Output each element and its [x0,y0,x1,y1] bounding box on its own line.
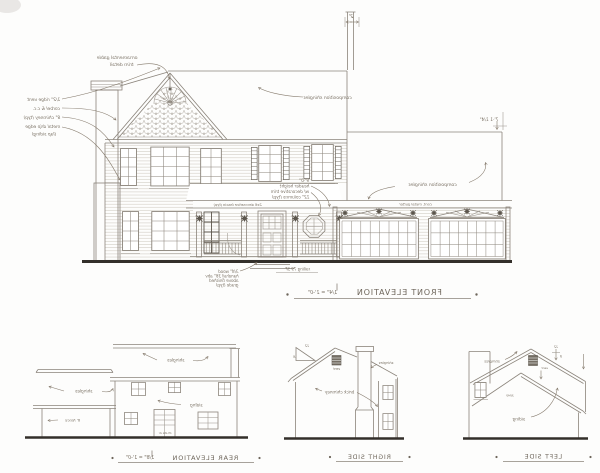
rear-main-house: shingles siding 15-lite dr [110,345,240,438]
window [218,383,230,396]
window [201,149,222,186]
window [132,383,146,396]
gable-vent: vent [332,356,341,372]
right-title-block: RIGHT SIDE [329,454,411,462]
elevation-drawing: 2' [0,0,600,473]
callout: 8" chimney (typ) [23,115,60,121]
drawing-title: REAR ELEVATION [172,454,239,462]
rear-window-pair [198,412,218,429]
annotation: vent [541,366,549,370]
callout: (lap siding) [31,132,56,138]
eave-dimension: 7'-1 1/4" [480,112,507,130]
drawing-title: RIGHT SIDE [347,454,391,461]
callout: 1/2" ridge vent [27,97,60,103]
rear-tower [469,352,490,439]
window [168,382,180,392]
annotation: ornamental gable [97,55,138,61]
annotation: w/ decorative trim [271,189,309,194]
window [475,383,486,398]
hanging-plant-ornament [196,215,203,222]
window [383,386,393,400]
annotation: siding [512,417,525,422]
side-chimney [356,347,374,439]
pitch-rise: 8 [560,355,562,359]
octagon-window [303,216,325,238]
annotation: grade (typ) [215,283,238,288]
shutter [283,147,289,179]
flue-dim: 2' [349,14,353,20]
gutter-note: cont. metal gutter [399,203,432,207]
rear-title-block: REAR ELEVATION 1/8" = 1'-0" [111,451,260,463]
shutter [304,146,310,178]
callout: metal drip edge [25,124,60,130]
annotation: shingles [74,389,92,394]
drawing-title: FRONT ELEVATION [356,288,442,297]
window [259,146,282,182]
left-title-block: LEFT SIDE [495,454,591,462]
pitch-run: 12 [554,345,558,349]
scan-smudge [0,0,21,13]
railing-note: railing 79 SF [276,267,318,273]
annotation: composition shingles [408,182,457,188]
annotation: trim detail [109,62,134,68]
rear-left-wing: shingles 6' fence [33,370,116,438]
annotation: composition shingles [303,95,352,101]
window [125,412,138,424]
right-side-elevation: vent 12 8 shingles brick chimney RIGHT S… [284,344,411,462]
window [383,414,393,430]
drawing-title: LEFT SIDE [524,454,562,461]
left-side-elevation: vent 12 8 shingles 3040 siding LEFT SIDE [463,345,592,462]
pitch-rise: 8 [292,355,295,359]
chimney-note: brick chimney [316,389,378,407]
annotation: brick chimney [324,390,354,395]
annotation: 12" columns (typ) [271,195,309,200]
annotation: 6' fence [64,418,80,423]
garage-door [429,219,506,259]
annotation: 9'-0" [299,178,309,183]
hanging-plant-ornament [292,215,299,222]
window [151,147,189,186]
window [123,212,139,251]
shutter [335,146,341,178]
annotation: shingles [166,358,184,363]
annotation: 3040 [506,394,514,398]
rear-door: 15-lite dr [154,410,175,438]
pitch-indicator: 12 8 [292,344,315,361]
callout: corbel & c.c. [33,106,60,112]
garage-door [340,219,419,259]
fascia-note: 2x6 decorative fascia (typ) [213,203,262,207]
window [121,149,137,186]
annotation: railing 79 SF [285,267,311,272]
front-elevation: 2' [23,12,512,299]
annotation: vent [332,367,340,371]
annotation: 15-lite dr [158,431,172,435]
hanging-plant-ornament [241,215,248,222]
deck-note: 3/4" wood handrail 36" abv above finishe… [205,263,257,288]
window [312,145,334,181]
eave-dim: 7'-1 1/4" [480,117,499,123]
first-floor-windows [121,212,191,254]
drawing-scale: 1/4" = 1'-0" [308,290,338,296]
plan-sheet: 2' [0,0,600,473]
annotation: siding [190,403,203,408]
drawing-scale: 1/8" = 1'-0" [126,455,154,461]
rear-elevation: shingles 6' fence shingles siding 15-lit… [25,345,261,463]
annotation: header height [280,184,310,189]
gable-note: ornamental gable trim detail [97,55,170,79]
pitch-run: 12 [305,344,309,348]
front-title-block: FRONT ELEVATION 1/4" = 1'-0" [286,284,477,299]
roof-flue: 2' [345,12,359,70]
window [152,212,189,251]
annotation: shingles [484,359,500,364]
shutter [251,147,257,179]
annotation: shingles [379,361,394,365]
